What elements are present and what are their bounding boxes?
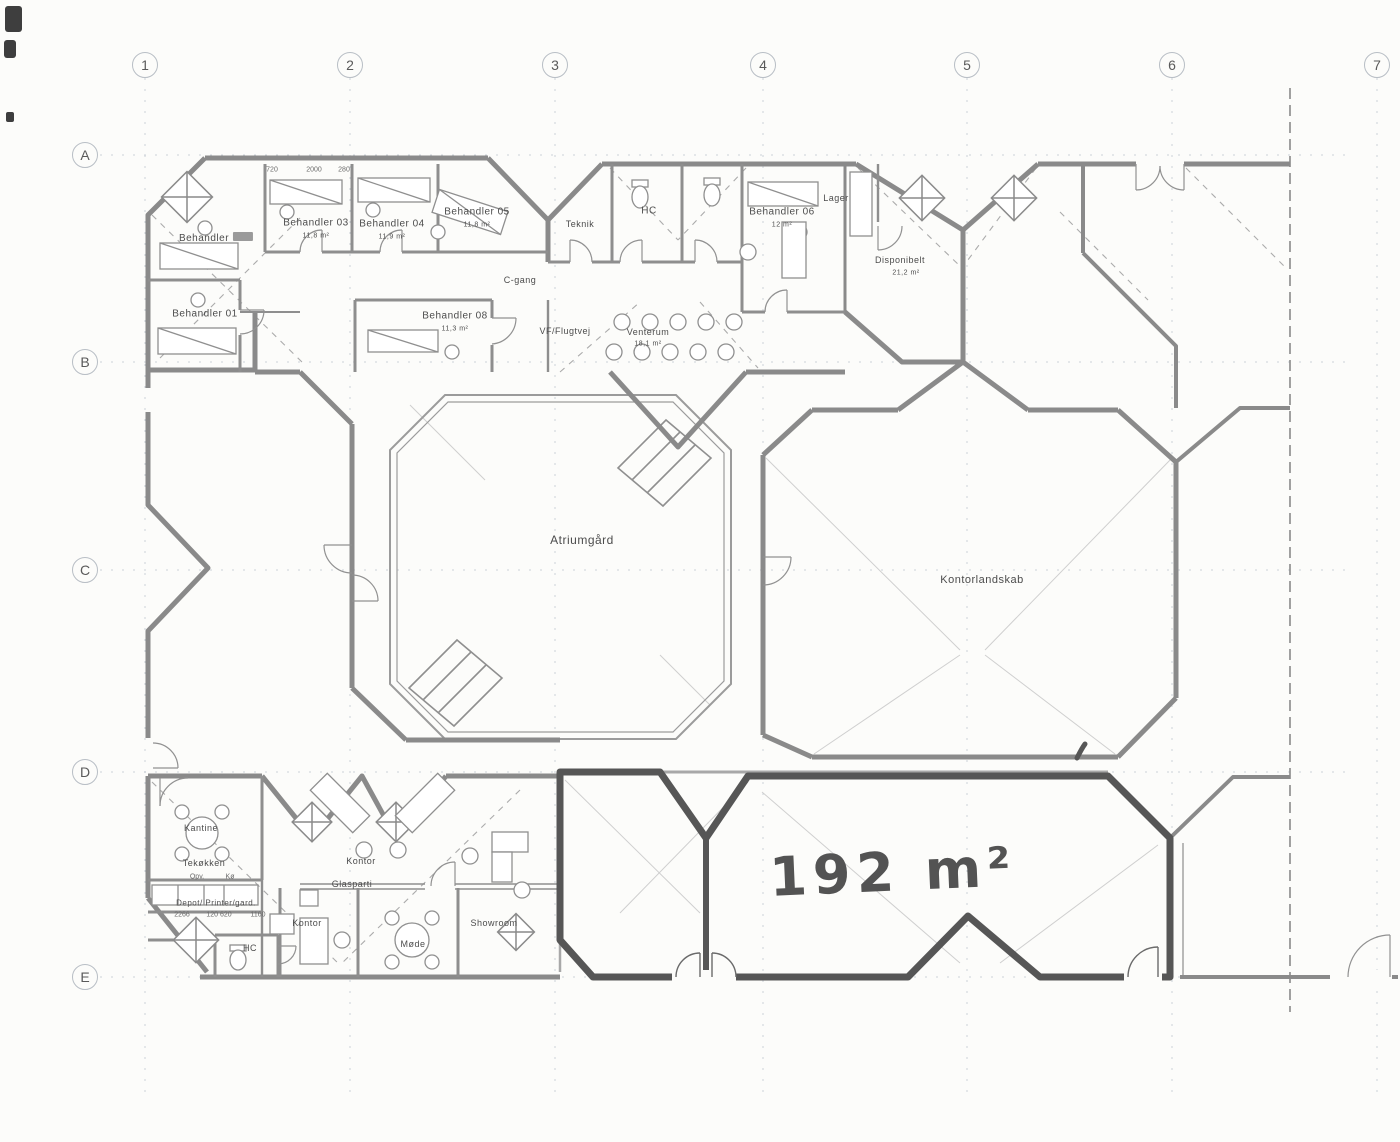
- roof-thin-lines: [410, 405, 1172, 963]
- door-corridor-3: [695, 240, 717, 262]
- underlying-walls: [560, 772, 1183, 975]
- door-room03: [300, 230, 322, 252]
- door-room01: [240, 310, 264, 334]
- door-left-outer: [153, 743, 178, 768]
- door-disponibelt: [878, 226, 902, 250]
- inner-walls: [148, 164, 878, 977]
- door-room08: [492, 318, 516, 344]
- skylight-hatch: [409, 420, 711, 726]
- door-arcs: [153, 164, 1184, 964]
- scan-artifacts: [4, 6, 22, 122]
- marker-outline: [560, 744, 1170, 977]
- door-top-right-double: [1136, 164, 1184, 190]
- door-room06: [765, 290, 787, 312]
- door-kontorlandskab: [763, 557, 791, 585]
- grid-lines: [100, 78, 1377, 1098]
- door-kantine: [160, 778, 188, 806]
- door-glasparti: [431, 862, 455, 886]
- floor-plan-page: 1234567ABCDE BehandlerBehandler 01Behand…: [0, 0, 1400, 1142]
- door-corridor-2: [620, 240, 642, 262]
- floor-plan-canvas: [0, 0, 1400, 1142]
- roof-dashed-lines: [152, 168, 1284, 965]
- door-corridor-1: [570, 240, 592, 262]
- door-room04: [380, 230, 402, 252]
- skylight-x-boxes: [162, 172, 1037, 963]
